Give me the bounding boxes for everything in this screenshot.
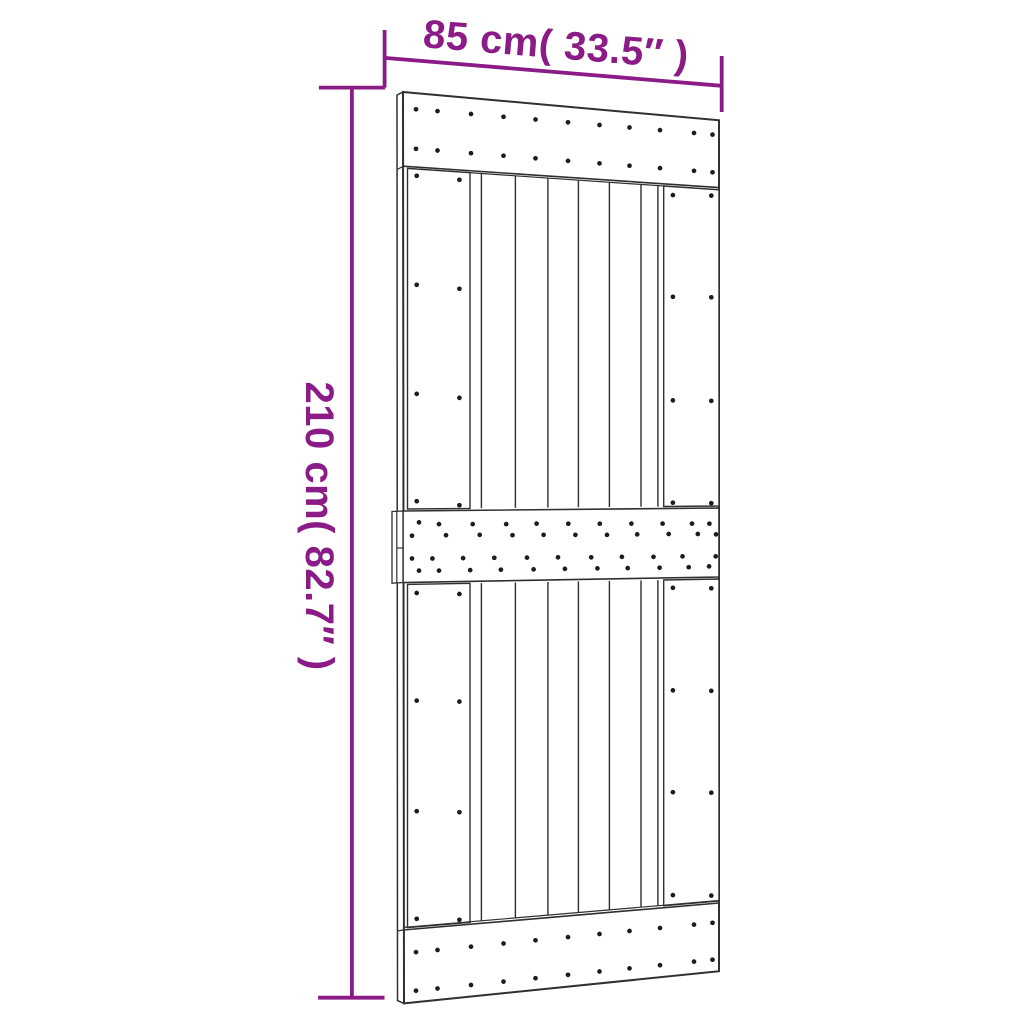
svg-text:210 cm( 82.7″ ): 210 cm( 82.7″ ) [297, 382, 341, 671]
